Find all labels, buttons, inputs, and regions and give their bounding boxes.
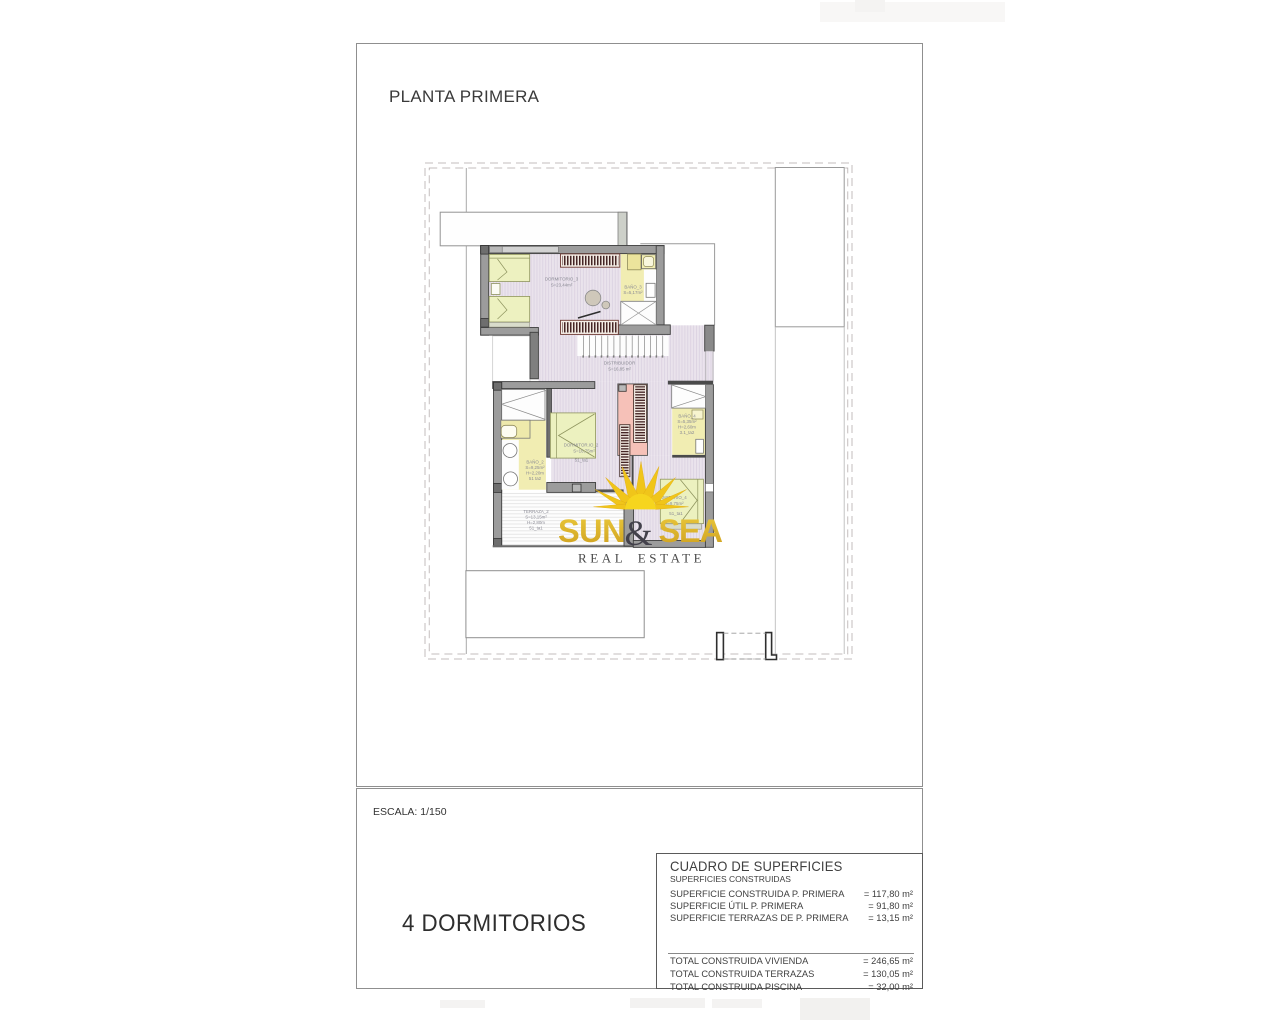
svg-text:H=2,20m: H=2,20m [526,471,544,476]
svg-text:BAÑO_4: BAÑO_4 [678,414,696,419]
svg-text:SEA: SEA [659,513,723,549]
svg-text:S=5,35m²: S=5,35m² [677,419,697,424]
svg-text:SUN: SUN [558,513,625,549]
svg-text:S=5,17m²: S=5,17m² [623,290,643,295]
svg-text:BAÑO_2: BAÑO_2 [526,460,544,465]
svg-text:TERRAZA_2: TERRAZA_2 [523,509,549,514]
svg-text:DORMITORIO_3: DORMITORIO_3 [545,277,579,282]
svg-text:51_ta1: 51_ta1 [529,526,543,531]
svg-text:S=13,15m²: S=13,15m² [525,515,547,520]
svg-text:H=2,60m: H=2,60m [678,425,696,430]
svg-text:BAÑO_3: BAÑO_3 [624,285,642,290]
svg-text:51 ta2: 51 ta2 [529,476,542,481]
svg-text:S=16,85 m²: S=16,85 m² [608,367,631,372]
svg-text:S=23,44m²: S=23,44m² [551,283,573,288]
svg-text:REAL ESTATE: REAL ESTATE [578,551,705,566]
svg-text:&: & [625,513,653,553]
svg-text:DISTRIBUIDOR: DISTRIBUIDOR [604,361,635,366]
svg-text:S=16,75m²: S=16,75m² [573,449,595,454]
svg-text:3.1_ta2: 3.1_ta2 [680,430,695,435]
svg-text:51_ta1: 51_ta1 [575,458,589,463]
svg-text:DORMITOR.IO_2: DORMITOR.IO_2 [564,443,599,448]
svg-text:H=2,80m: H=2,80m [527,520,545,525]
svg-text:S=9,25m²: S=9,25m² [525,465,545,470]
